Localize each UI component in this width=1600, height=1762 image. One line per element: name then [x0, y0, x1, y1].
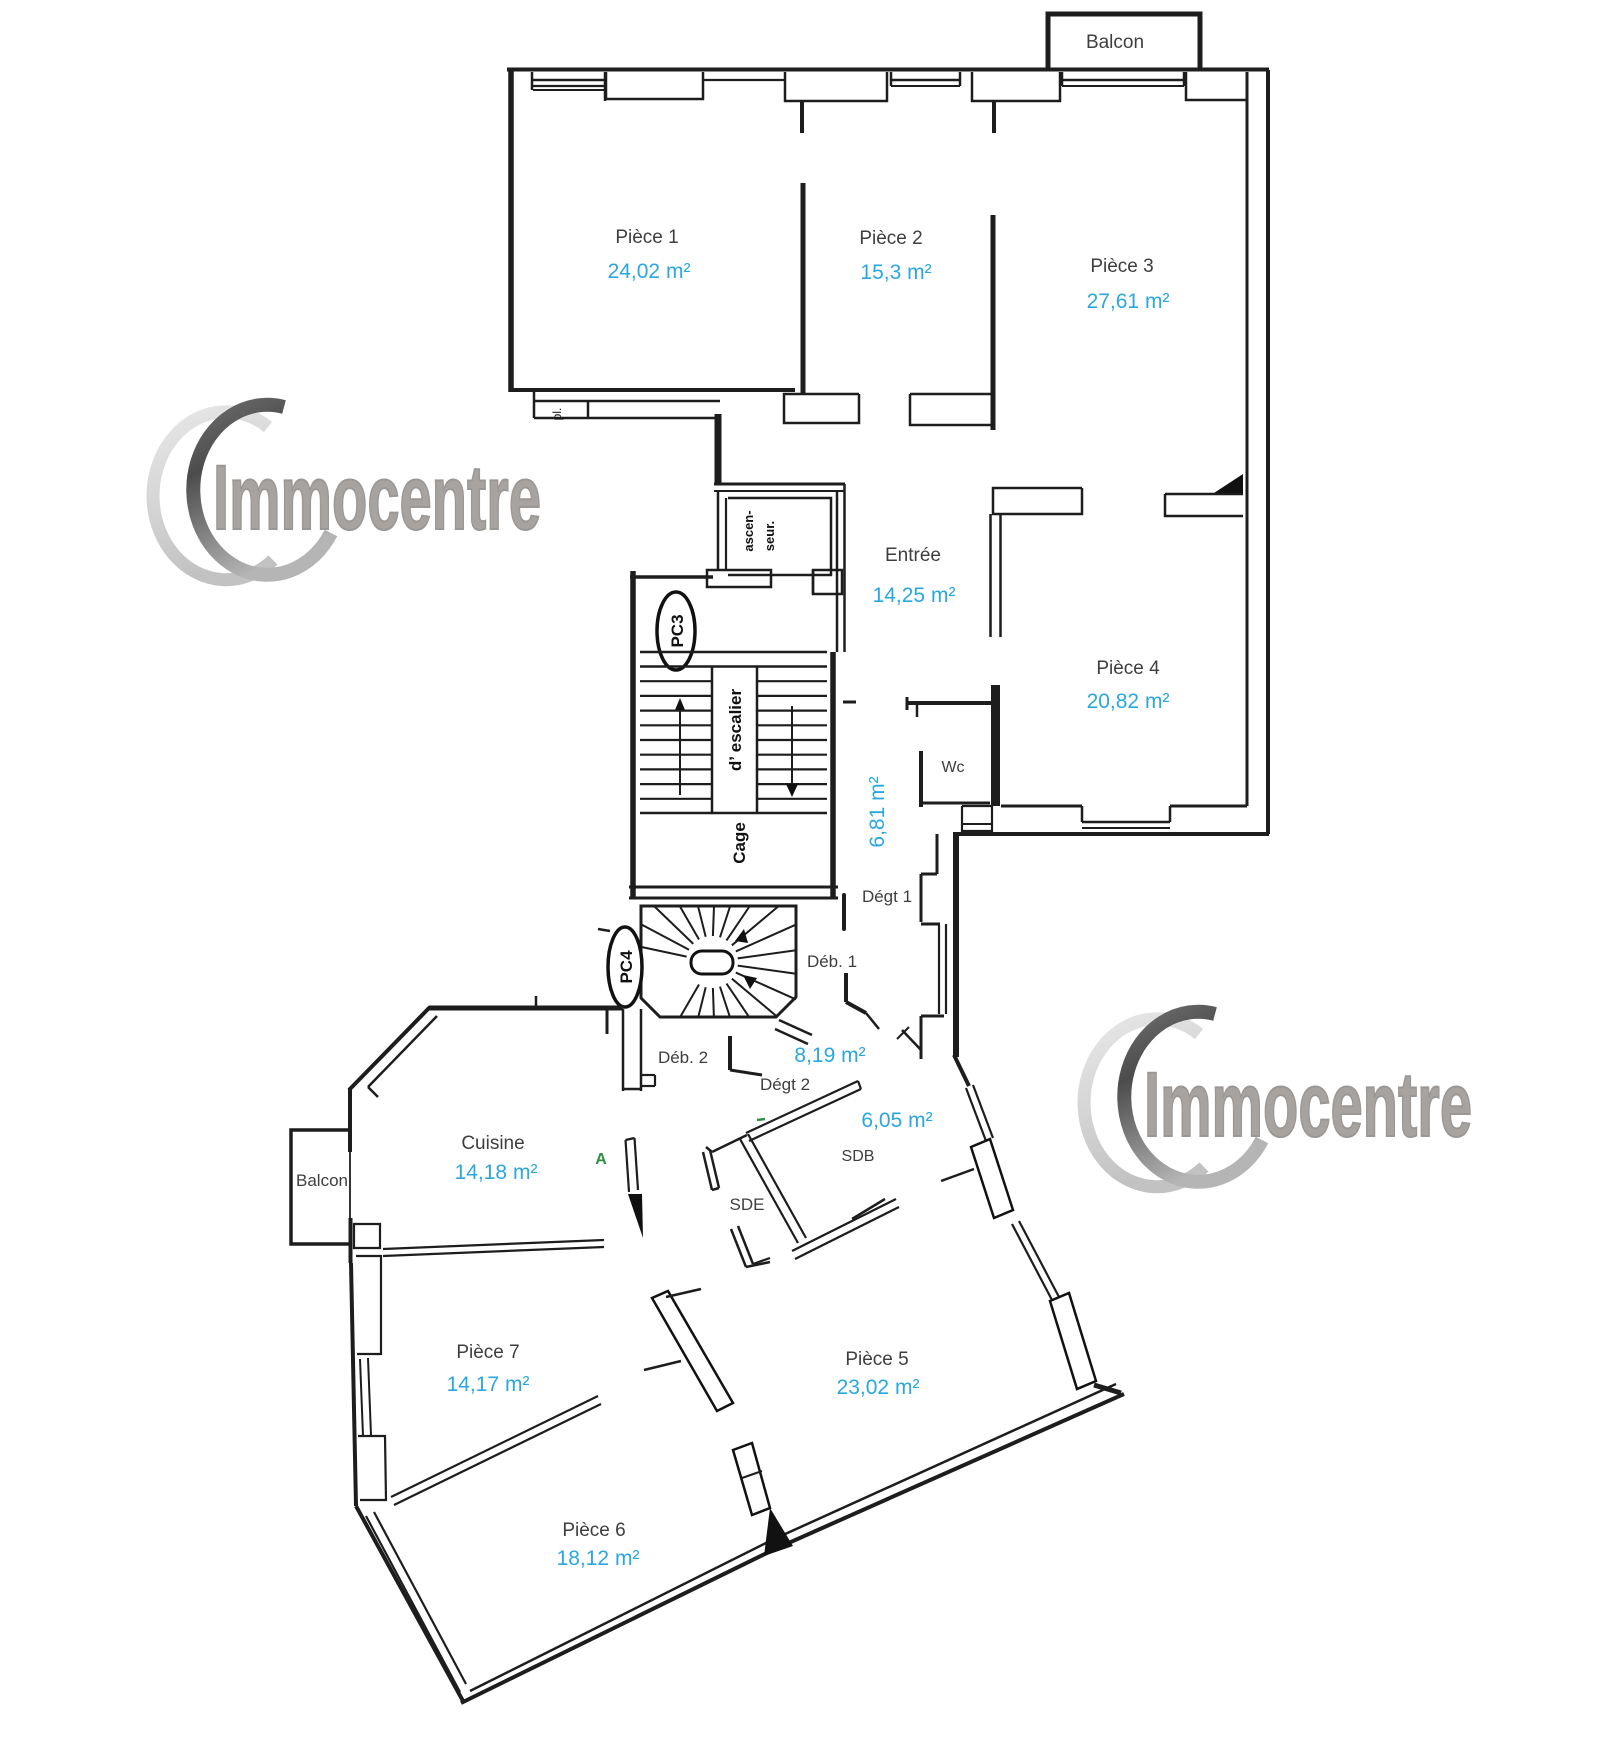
svg-text:8,19 m²: 8,19 m²: [794, 1044, 865, 1067]
svg-text:Pièce 2: Pièce 2: [859, 228, 922, 249]
svg-text:ascen-: ascen-: [741, 510, 756, 551]
svg-text:seur.: seur.: [762, 521, 777, 551]
svg-text:14,18 m²: 14,18 m²: [455, 1161, 538, 1184]
svg-text:6,05 m²: 6,05 m²: [861, 1109, 932, 1132]
svg-text:15,3 m²: 15,3 m²: [860, 261, 931, 284]
svg-text:Wc: Wc: [941, 759, 964, 776]
svg-text:23,02 m²: 23,02 m²: [837, 1376, 920, 1399]
svg-text:Pièce 1: Pièce 1: [615, 227, 678, 248]
svg-text:PC3: PC3: [668, 614, 687, 647]
svg-text:Pièce 3: Pièce 3: [1090, 256, 1153, 277]
svg-text:27,61 m²: 27,61 m²: [1087, 290, 1170, 313]
svg-text:PC4: PC4: [617, 950, 636, 984]
svg-text:Pièce 6: Pièce 6: [562, 1520, 625, 1541]
svg-text:Immocentre: Immocentre: [213, 447, 541, 549]
svg-text:Cage: Cage: [730, 822, 749, 864]
svg-text:20,82 m²: 20,82 m²: [1087, 690, 1170, 713]
svg-text:A: A: [595, 1151, 607, 1168]
svg-text:Cuisine: Cuisine: [461, 1133, 524, 1154]
svg-text:14,25 m²: 14,25 m²: [873, 584, 956, 607]
svg-text:Pièce 4: Pièce 4: [1096, 658, 1160, 679]
svg-text:SDB: SDB: [842, 1148, 875, 1165]
svg-text:Immocentre: Immocentre: [1144, 1054, 1472, 1156]
svg-text:d’ escalier: d’ escalier: [726, 689, 745, 772]
svg-text:Pièce 5: Pièce 5: [845, 1349, 908, 1370]
svg-text:Déb. 1: Déb. 1: [807, 952, 857, 971]
svg-text:Pièce 7: Pièce 7: [456, 1342, 519, 1363]
svg-text:18,12 m²: 18,12 m²: [557, 1547, 640, 1570]
svg-text:Dégt 2: Dégt 2: [760, 1075, 810, 1094]
svg-text:SDE: SDE: [730, 1195, 765, 1214]
svg-text:14,17 m²: 14,17 m²: [447, 1373, 530, 1396]
svg-text:Dégt 1: Dégt 1: [862, 887, 912, 906]
svg-text:Balcon: Balcon: [1086, 32, 1144, 53]
svg-text:Entrée: Entrée: [885, 545, 941, 566]
svg-text:24,02 m²: 24,02 m²: [608, 260, 691, 283]
svg-text:pl.: pl.: [550, 408, 564, 421]
svg-text:Déb. 2: Déb. 2: [658, 1048, 708, 1067]
svg-text:6,81 m²: 6,81 m²: [866, 776, 889, 847]
svg-text:Balcon: Balcon: [296, 1171, 348, 1190]
